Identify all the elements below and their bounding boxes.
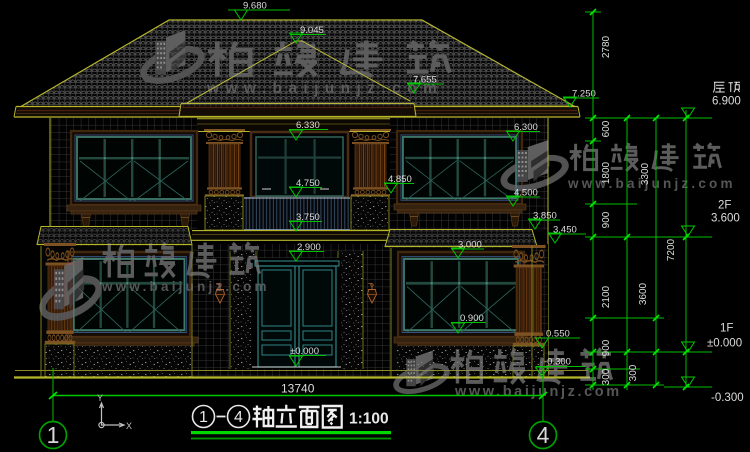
- svg-text:0.900: 0.900: [460, 313, 484, 324]
- svg-text:1:100: 1:100: [349, 411, 389, 428]
- svg-text:300: 300: [601, 368, 612, 385]
- svg-text:www.baijunjz.com: www.baijunjz.com: [454, 384, 622, 400]
- svg-text:6.300: 6.300: [514, 122, 538, 133]
- svg-text:Y: Y: [97, 393, 103, 403]
- svg-text:X: X: [126, 421, 132, 431]
- svg-text:3600: 3600: [638, 282, 649, 305]
- svg-text:3.600: 3.600: [711, 213, 740, 225]
- svg-text:6.900: 6.900: [712, 96, 741, 108]
- svg-text:7.250: 7.250: [572, 89, 596, 100]
- svg-text:3.450: 3.450: [553, 225, 577, 236]
- svg-text:900: 900: [601, 211, 612, 228]
- svg-text:7200: 7200: [666, 238, 677, 261]
- svg-text:2F: 2F: [718, 200, 731, 212]
- svg-text:3.750: 3.750: [296, 212, 320, 223]
- svg-text:4.850: 4.850: [388, 174, 412, 185]
- svg-text:3.850: 3.850: [533, 211, 557, 222]
- svg-text:2100: 2100: [601, 285, 612, 308]
- svg-text:4.750: 4.750: [296, 178, 320, 189]
- svg-text:1F: 1F: [720, 323, 733, 335]
- svg-text:900: 900: [601, 339, 612, 356]
- svg-text:1800: 1800: [601, 161, 612, 184]
- svg-text:2780: 2780: [601, 35, 612, 58]
- svg-text:-0.300: -0.300: [544, 357, 571, 368]
- svg-text:9.680: 9.680: [243, 1, 267, 12]
- svg-text:3.000: 3.000: [458, 240, 482, 251]
- svg-text:9.045: 9.045: [300, 25, 324, 36]
- svg-text:2.900: 2.900: [297, 242, 321, 253]
- svg-text:-0.300: -0.300: [711, 392, 744, 404]
- svg-text:4: 4: [234, 409, 243, 426]
- svg-text:1: 1: [47, 422, 60, 448]
- svg-text:600: 600: [601, 120, 612, 137]
- svg-text:4.500: 4.500: [514, 188, 538, 199]
- svg-text:0.550: 0.550: [546, 329, 570, 340]
- svg-text:6.330: 6.330: [296, 120, 320, 131]
- svg-text:4: 4: [537, 422, 550, 448]
- svg-text:1: 1: [199, 409, 208, 426]
- svg-text:www.baijunjz.com: www.baijunjz.com: [101, 279, 270, 294]
- svg-text:3300: 3300: [640, 162, 651, 185]
- svg-text:±0.000: ±0.000: [707, 338, 742, 350]
- svg-text:±0.000: ±0.000: [290, 346, 319, 357]
- svg-text:13740: 13740: [281, 382, 315, 396]
- svg-text:300: 300: [628, 364, 639, 381]
- svg-text:www.baijunjz.com: www.baijunjz.com: [567, 176, 736, 191]
- svg-text:7.655: 7.655: [413, 75, 437, 86]
